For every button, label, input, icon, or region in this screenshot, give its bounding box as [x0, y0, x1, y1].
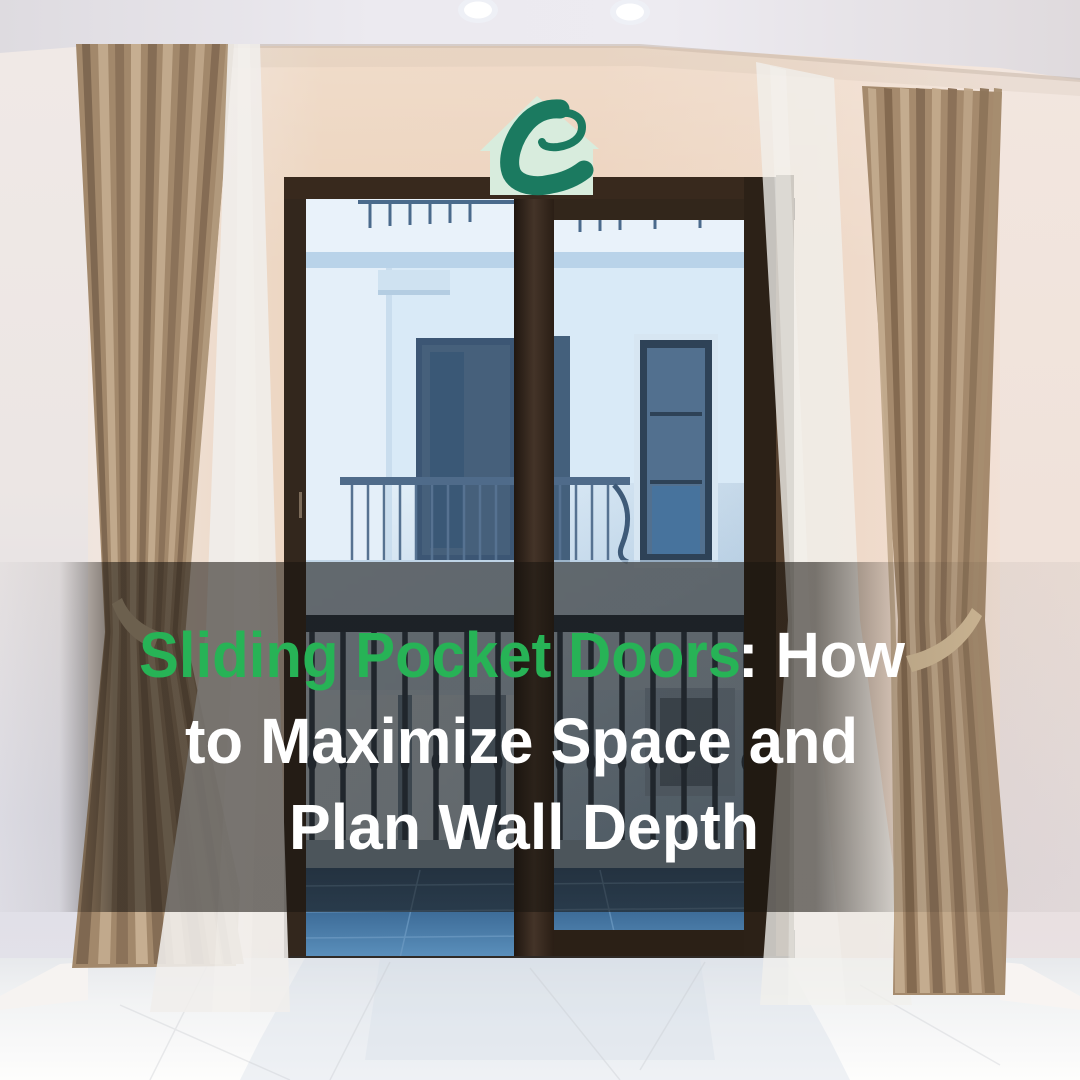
svg-text:Plan Wall Depth: Plan Wall Depth: [289, 791, 759, 863]
svg-text:: How: : How: [738, 619, 905, 691]
svg-text:to Maximize Space and: to Maximize Space and: [185, 705, 858, 777]
svg-text:Sliding Pocket Doors: Sliding Pocket Doors: [139, 619, 741, 691]
